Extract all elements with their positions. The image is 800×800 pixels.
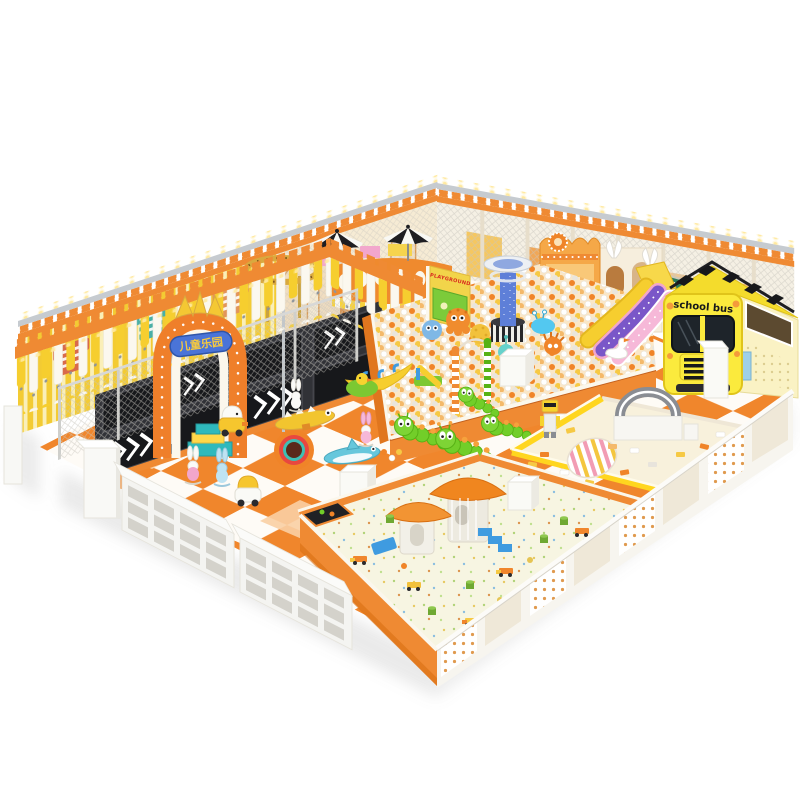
- orange-octopus: [446, 308, 470, 336]
- blue-octopus: [422, 320, 442, 340]
- rainbow-tunnel: [274, 430, 314, 470]
- white-car: [235, 476, 261, 507]
- white-cube: [508, 476, 539, 510]
- bus-door: [742, 352, 751, 380]
- playground-3d-render: 儿童乐园: [0, 0, 800, 800]
- playground-scene: 儿童乐园: [0, 0, 800, 800]
- white-cube: [500, 349, 534, 386]
- white-wall-end: [4, 406, 22, 484]
